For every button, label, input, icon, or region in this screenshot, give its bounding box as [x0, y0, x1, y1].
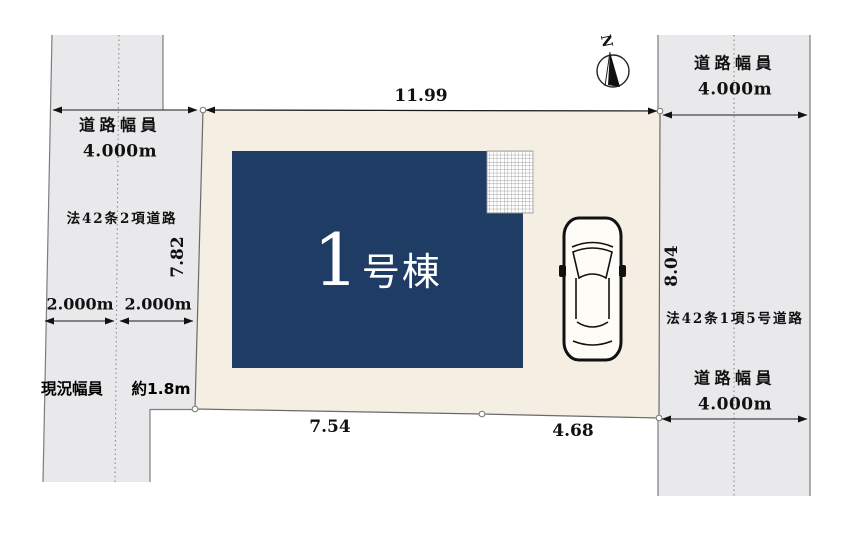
left-road-width-value: 4.000m	[79, 138, 161, 164]
left-road-law-label: 法42条2項道路	[67, 207, 178, 227]
dim-top-label: 11.99	[394, 86, 447, 106]
right-road-width-value-top: 4.000m	[694, 76, 776, 102]
right-road-law-label: 法42条1項5号道路	[666, 307, 803, 327]
current-width-label: 現況幅員	[41, 377, 103, 399]
dim-right-label: 8.04	[662, 245, 682, 286]
building-suffix: 号棟	[362, 241, 442, 296]
building-number: 1	[313, 224, 359, 296]
right-road-width-title-bottom: 道路幅員	[694, 366, 776, 391]
right-road-width-value-bottom: 4.000m	[694, 391, 776, 417]
setback-right-label: 2.000m	[124, 295, 191, 314]
left-road-width-title: 道路幅員	[79, 113, 161, 138]
right-road-width-label-top: 道路幅員 4.000m	[694, 51, 776, 102]
right-road-width-label-bottom: 道路幅員 4.000m	[694, 366, 776, 417]
site-plan: 11.99 7.82 8.04 7.54 4.68 道路幅員 4.000m 法4…	[0, 0, 853, 539]
left-road-width-label: 道路幅員 4.000m	[79, 113, 161, 164]
setback-left-label: 2.000m	[46, 295, 113, 314]
building-label: 1 号棟	[232, 151, 523, 368]
dim-left-label: 7.82	[168, 236, 188, 277]
dim-bottom-right-label: 4.68	[552, 421, 593, 441]
car-icon	[559, 218, 626, 360]
north-arrow-icon	[597, 52, 629, 87]
dim-bottom-left-label: 7.54	[309, 417, 350, 437]
right-road-width-title-top: 道路幅員	[694, 51, 776, 76]
current-width-value: 約1.8m	[131, 377, 190, 399]
